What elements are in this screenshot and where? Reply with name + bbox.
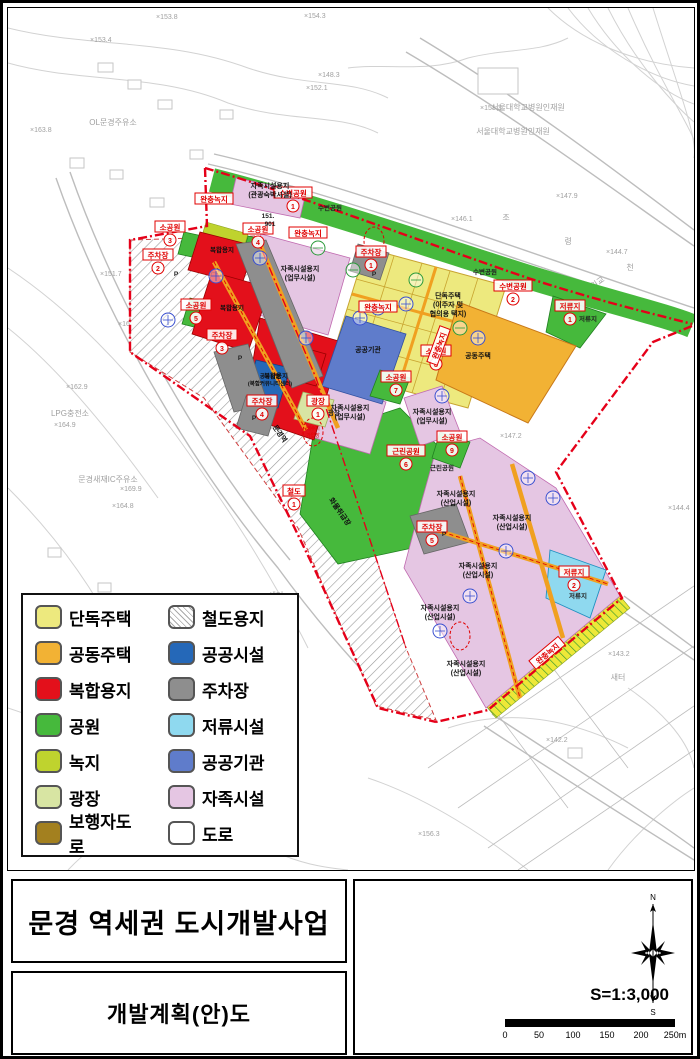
svg-text:4: 4: [256, 240, 260, 247]
svg-text:자족시설용지: 자족시설용지: [281, 264, 320, 273]
legend-item-right-3: 저류시설: [160, 709, 293, 741]
legend-swatch: [168, 749, 195, 773]
elevation-mark: ×146.1: [451, 216, 473, 223]
legend-item-right-0: 철도용지: [160, 601, 293, 633]
legend-item-left-3: 공원: [27, 709, 160, 741]
svg-text:자족시설용지: 자족시설용지: [459, 561, 498, 570]
svg-text:단독주택: 단독주택: [435, 291, 461, 300]
svg-text:완충녹지: 완충녹지: [364, 302, 392, 312]
svg-text:(업무시설): (업무시설): [417, 416, 447, 425]
svg-text:복합용지: 복합용지: [264, 371, 288, 380]
sheet-title: 개발계획(안)도: [107, 997, 251, 1029]
svg-text:소공원: 소공원: [386, 372, 407, 382]
small-label: 151.: [262, 213, 275, 220]
bg-text: 조: [502, 213, 509, 222]
legend-item-right-5: 자족시설: [160, 781, 293, 813]
svg-text:주차장: 주차장: [212, 330, 233, 340]
zone-label: 완충녹지: [359, 301, 397, 312]
scale-ratio: S=1:3,000: [590, 985, 669, 1005]
svg-text:자족시설용지: 자족시설용지: [493, 513, 532, 522]
legend-item-right-6: 도로: [160, 817, 293, 849]
elevation-mark: ×142.2: [546, 737, 568, 744]
svg-text:공공기관: 공공기관: [355, 345, 381, 354]
legend-label: 자족시설: [202, 785, 278, 810]
survey-stamp-blue: [433, 624, 447, 638]
small-label: 901: [265, 221, 276, 228]
bg-text: 천: [626, 262, 633, 272]
svg-text:5: 5: [194, 316, 198, 323]
small-label: 저류지: [579, 314, 597, 323]
svg-text:(산업시설): (산업시설): [441, 498, 471, 507]
svg-text:자족시설용지: 자족시설용지: [251, 181, 290, 190]
small-label: 근린공원: [430, 463, 454, 472]
svg-text:3: 3: [220, 346, 224, 353]
small-label: P: [442, 531, 447, 538]
svg-text:주차장: 주차장: [148, 250, 169, 260]
bg-text: 서울대학교병원인재원: [476, 126, 550, 136]
svg-text:협의용 택지): 협의용 택지): [430, 309, 466, 318]
legend-label: 녹지: [69, 749, 145, 774]
survey-stamp-blue: [499, 544, 513, 558]
elevation-mark: ×144.7: [606, 249, 628, 256]
svg-text:1: 1: [316, 412, 320, 419]
sheet-title-box: 개발계획(안)도: [11, 971, 347, 1055]
legend-swatch: [35, 749, 62, 773]
bg-text: LPG충전소: [51, 408, 89, 418]
legend-item-left-6: 보행자도로: [27, 817, 160, 849]
svg-text:6: 6: [404, 462, 408, 469]
elevation-mark: ×147.2: [500, 433, 522, 440]
survey-stamp-green: [346, 263, 360, 277]
legend-label: 공공기관: [202, 749, 278, 774]
svg-text:2: 2: [572, 583, 576, 590]
svg-text:저류지: 저류지: [560, 301, 581, 311]
svg-text:저류지: 저류지: [564, 567, 585, 577]
survey-stamp-blue: [435, 389, 449, 403]
plan-sheet: 서울대학교병원인재원서울대학교병원인재원OL문경주유소LPG충전소문경새재IC주…: [0, 0, 700, 1059]
scale-bar-rule: [505, 1019, 675, 1027]
svg-text:(관광숙박시설): (관광숙박시설): [248, 190, 291, 199]
svg-text:주차장: 주차장: [252, 396, 273, 406]
scale-tick: 200: [633, 1030, 648, 1040]
legend-label: 단독주택: [69, 605, 145, 630]
project-title-box: 문경 역세권 도시개발사업: [11, 879, 347, 963]
legend-item-right-2: 주차장: [160, 673, 293, 705]
area-label: 복합용지: [220, 303, 244, 312]
small-label: P: [238, 355, 243, 362]
scale-tick: 50: [534, 1030, 544, 1040]
project-title: 문경 역세권 도시개발사업: [28, 902, 329, 941]
svg-text:자족시설용지: 자족시설용지: [437, 489, 476, 498]
svg-text:9: 9: [450, 448, 454, 455]
elevation-mark: ×143.2: [608, 651, 630, 658]
svg-text:1: 1: [291, 204, 295, 211]
bg-text: 령: [564, 237, 571, 246]
svg-text:(산업시설): (산업시설): [425, 612, 455, 621]
legend-label: 도로: [202, 821, 278, 846]
legend-label: 주차장: [202, 677, 278, 702]
bg-text: OL문경주유소: [89, 117, 136, 127]
elevation-mark: ×169.9: [120, 486, 142, 493]
zone-label: 완충녹지: [195, 193, 233, 204]
svg-text:소공원: 소공원: [160, 222, 181, 232]
svg-text:(산업시설): (산업시설): [451, 668, 481, 677]
elevation-mark: ×156.3: [418, 831, 440, 838]
legend-item-left-0: 단독주택: [27, 601, 160, 633]
legend-swatch: [35, 677, 62, 701]
svg-text:1: 1: [292, 502, 296, 509]
legend-swatch: [35, 821, 62, 845]
small-label: 수변공원: [473, 267, 497, 276]
svg-text:수변공원: 수변공원: [499, 281, 527, 291]
legend-item-left-2: 복합용지: [27, 673, 160, 705]
legend-item-left-1: 공동주택: [27, 637, 160, 669]
svg-text:자족시설용지: 자족시설용지: [421, 603, 460, 612]
elevation-mark: ×147.9: [556, 193, 578, 200]
legend-label: 저류시설: [202, 713, 278, 738]
svg-text:2: 2: [156, 266, 160, 273]
legend: 단독주택공동주택복합용지공원녹지광장보행자도로 철도용지공공시설주차장저류시설공…: [21, 593, 299, 857]
svg-text:(업무시설): (업무시설): [285, 273, 315, 282]
svg-text:소공원: 소공원: [442, 432, 463, 442]
elevation-mark: ×144.4: [668, 505, 690, 512]
small-label: 수변공원: [318, 203, 342, 212]
svg-text:복합용지: 복합용지: [210, 245, 234, 254]
elevation-mark: ×164.8: [112, 503, 134, 510]
survey-stamp-blue: [353, 311, 367, 325]
legend-swatch: [35, 713, 62, 737]
svg-text:4: 4: [260, 412, 264, 419]
elevation-mark: ×151.7: [100, 271, 122, 278]
survey-stamp-blue: [399, 297, 413, 311]
scale-tick: 100: [565, 1030, 580, 1040]
elevation-mark: ×153.4: [90, 37, 112, 44]
small-label: P: [372, 271, 377, 278]
legend-column-right: 철도용지공공시설주차장저류시설공공기관자족시설도로: [160, 601, 293, 849]
survey-stamp-green: [409, 273, 423, 287]
legend-label: 철도용지: [202, 605, 278, 630]
elevation-mark: ×152.1: [306, 85, 328, 92]
survey-stamp-blue: [521, 471, 535, 485]
legend-label: 공원: [69, 713, 145, 738]
small-label: P: [174, 271, 179, 278]
svg-text:1: 1: [568, 317, 572, 324]
svg-text:자족시설용지: 자족시설용지: [413, 407, 452, 416]
svg-text:자족시설용지: 자족시설용지: [447, 659, 486, 668]
zone-label: 완충녹지: [289, 227, 327, 238]
survey-stamp-blue: [463, 589, 477, 603]
svg-text:철도: 철도: [287, 486, 301, 496]
legend-swatch: [168, 713, 195, 737]
svg-text:소공원: 소공원: [186, 300, 207, 310]
small-label: 저류지: [569, 591, 587, 600]
bg-text: 서울대학교병원인재원: [491, 102, 565, 112]
svg-text:2: 2: [511, 297, 515, 304]
legend-swatch: [168, 641, 195, 665]
legend-swatch: [35, 785, 62, 809]
survey-stamp-green: [311, 241, 325, 255]
area-label: 공동주택: [465, 351, 491, 360]
scale-tick: 150: [599, 1030, 614, 1040]
elevation-mark: ×162.9: [66, 384, 88, 391]
elevation-mark: ×148.3: [318, 72, 340, 79]
legend-label: 공동주택: [69, 641, 145, 666]
svg-text:배수지: 배수지: [306, 425, 320, 432]
survey-stamp-blue: [161, 313, 175, 327]
svg-text:광장: 광장: [311, 396, 325, 406]
area-label: 단독주택(이주자 및협의용 택지): [430, 291, 466, 318]
bg-text: 문경새재IC주유소: [78, 474, 138, 484]
svg-text:3: 3: [168, 238, 172, 245]
svg-text:공동주택: 공동주택: [465, 351, 491, 360]
svg-text:복합용지: 복합용지: [220, 303, 244, 312]
svg-text:완충녹지: 완충녹지: [200, 194, 228, 204]
legend-label: 광장: [69, 785, 145, 810]
area-label: 공공기관: [355, 345, 381, 354]
legend-column-left: 단독주택공동주택복합용지공원녹지광장보행자도로: [27, 601, 160, 849]
survey-stamp-blue: [209, 269, 223, 283]
svg-text:(산업시설): (산업시설): [497, 522, 527, 531]
svg-text:(산업시설): (산업시설): [463, 570, 493, 579]
scale-panel: N S S=1:3,000 050100150200250m: [353, 879, 693, 1055]
legend-item-right-1: 공공시설: [160, 637, 293, 669]
legend-label: 공공시설: [202, 641, 278, 666]
legend-label: 보행자도로: [69, 808, 145, 858]
elevation-mark: ×164.9: [54, 422, 76, 429]
compass-north-label: N: [650, 893, 656, 902]
svg-text:근린공원: 근린공원: [392, 446, 420, 456]
legend-swatch: [168, 677, 195, 701]
scale-bar: 050100150200250m: [505, 1019, 683, 1045]
small-label: P: [252, 415, 257, 422]
svg-text:(이주자 및: (이주자 및: [433, 300, 464, 309]
legend-swatch: [168, 605, 195, 629]
legend-swatch: [35, 641, 62, 665]
survey-stamp-blue: [299, 331, 313, 345]
legend-item-right-4: 공공기관: [160, 745, 293, 777]
svg-text:완충녹지: 완충녹지: [294, 228, 322, 238]
elevation-mark: ×153.8: [156, 14, 178, 21]
elevation-mark: ×163.8: [30, 127, 52, 134]
svg-text:7: 7: [394, 388, 398, 395]
survey-stamp-blue: [546, 491, 560, 505]
compass-south-label: S: [650, 1008, 655, 1017]
survey-stamp-blue: [471, 331, 485, 345]
area-label: 복합용지: [210, 245, 234, 254]
scale-tick: 250m: [664, 1030, 687, 1040]
elevation-mark: ×154.3: [304, 13, 326, 20]
legend-swatch: [168, 785, 195, 809]
survey-stamp-blue: [253, 251, 267, 265]
svg-text:주차장: 주차장: [422, 522, 443, 532]
small-label: 광장: [328, 408, 340, 417]
legend-item-left-4: 녹지: [27, 745, 160, 777]
svg-text:1: 1: [369, 263, 373, 270]
legend-label: 복합용지: [69, 677, 145, 702]
legend-swatch: [168, 821, 195, 845]
area-label: 복합용지: [264, 371, 288, 380]
scale-tick: 0: [502, 1030, 507, 1040]
svg-text:(복합커뮤니티센터): (복합커뮤니티센터): [248, 380, 292, 388]
legend-swatch: [35, 605, 62, 629]
svg-text:5: 5: [430, 538, 434, 545]
survey-stamp-green: [453, 321, 467, 335]
elevation-mark: ×151.3: [480, 105, 502, 112]
svg-text:가압장: 가압장: [306, 432, 320, 439]
bg-text: 새터: [611, 673, 626, 682]
svg-text:주차장: 주차장: [361, 247, 382, 257]
